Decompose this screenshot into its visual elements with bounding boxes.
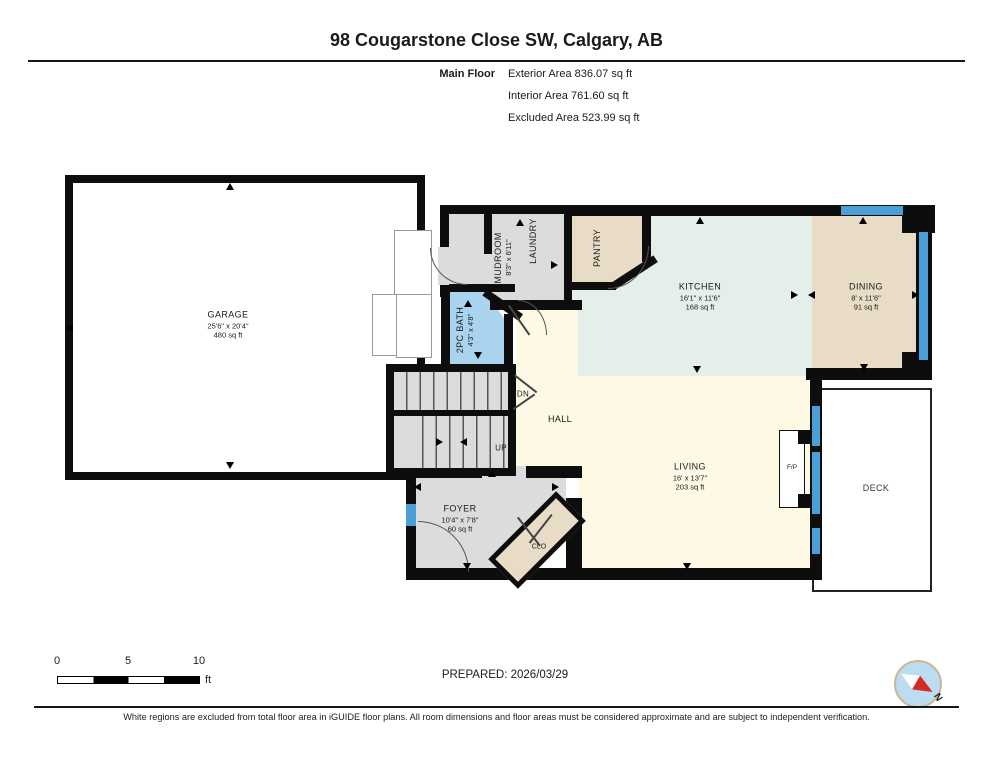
window <box>919 232 928 360</box>
room-closet-label: CLO <box>532 542 546 551</box>
stairs-down-label: DN <box>517 390 529 399</box>
wall <box>504 314 513 368</box>
measurement-arrow <box>516 219 524 226</box>
measurement-arrow <box>808 291 815 299</box>
scale-tick-0: 0 <box>54 655 60 667</box>
room-mudroom-label: MUDROOM 8'3" x 6'11" <box>493 232 513 283</box>
disclaimer-text: White regions are excluded from total fl… <box>0 712 993 722</box>
interior-area-label: Interior Area 761.60 sq ft <box>508 90 628 102</box>
prepared-date: PREPARED: 2026/03/29 <box>442 669 568 681</box>
room-laundry-label: LAUNDRY <box>528 218 538 264</box>
door-arc <box>430 248 467 285</box>
measurement-arrow <box>226 183 234 190</box>
wall <box>798 430 812 444</box>
wall <box>806 368 932 380</box>
measurement-arrow <box>488 470 496 477</box>
stairs-treads-down <box>394 372 508 410</box>
room-foyer-label: FOYER 10'4" x 7'8" 60 sq ft <box>442 503 479 534</box>
wall <box>564 212 572 310</box>
room-deck-label: DECK <box>863 483 890 495</box>
room-garage-label: GARAGE 25'6" x 20'4" 480 sq ft <box>207 309 248 340</box>
scale-tick-5: 5 <box>125 655 131 667</box>
wall <box>484 212 492 254</box>
measurement-arrow <box>551 261 558 269</box>
window <box>406 504 416 526</box>
fireplace-label: F/P <box>787 464 797 472</box>
stairs-treads-up <box>410 416 508 468</box>
measurement-arrow <box>463 563 471 570</box>
measurement-arrow <box>414 483 421 491</box>
measurement-arrow <box>693 366 701 373</box>
footer-divider <box>34 706 959 708</box>
window <box>841 206 903 215</box>
wall <box>65 472 425 480</box>
page-title: 98 Cougarstone Close SW, Calgary, AB <box>0 30 993 51</box>
wall <box>440 205 572 214</box>
room-bath-label: 2PC BATH 4'3" x 4'8" <box>455 307 475 354</box>
floorplan-page: 98 Cougarstone Close SW, Calgary, AB Mai… <box>0 0 993 768</box>
measurement-arrow <box>791 291 798 299</box>
room-hall-label: HALL <box>548 414 572 426</box>
measurement-arrow <box>859 217 867 224</box>
wall <box>564 205 814 216</box>
measurement-arrow <box>683 563 691 570</box>
utility-box <box>394 230 432 296</box>
utility-box <box>396 294 432 358</box>
wall <box>441 286 450 370</box>
scale-tick-10: 10 <box>193 655 205 667</box>
excluded-area-label: Excluded Area 523.99 sq ft <box>508 112 639 124</box>
window <box>812 528 820 554</box>
room-dining-label: DINING 8' x 11'6" 91 sq ft <box>849 281 883 312</box>
scale-bar <box>57 676 200 684</box>
room-kitchen-label: KITCHEN 16'1" x 11'6" 168 sq ft <box>679 281 721 312</box>
measurement-arrow <box>436 438 443 446</box>
measurement-arrow <box>552 483 559 491</box>
window <box>812 406 820 446</box>
measurement-arrow <box>912 291 919 299</box>
measurement-arrow <box>226 462 234 469</box>
measurement-arrow <box>474 352 482 359</box>
window <box>812 452 820 514</box>
room-living-label: LIVING 16' x 13'7" 203 sq ft <box>673 461 707 492</box>
compass-icon: N <box>894 660 940 706</box>
room-pantry-label: PANTRY <box>592 229 602 267</box>
wall <box>441 284 515 292</box>
utility-box <box>372 294 398 356</box>
scale-unit-label: ft <box>205 674 211 686</box>
measurement-arrow <box>66 324 73 332</box>
exterior-area-label: Exterior Area 836.07 sq ft <box>508 68 632 80</box>
measurement-arrow <box>696 217 704 224</box>
floor-label: Main Floor <box>330 68 495 80</box>
header-divider <box>28 60 965 62</box>
wall <box>798 494 812 508</box>
measurement-arrow <box>460 438 467 446</box>
wall <box>65 175 425 183</box>
measurement-arrow <box>860 364 868 371</box>
stairs-up-label: UP <box>495 444 507 453</box>
